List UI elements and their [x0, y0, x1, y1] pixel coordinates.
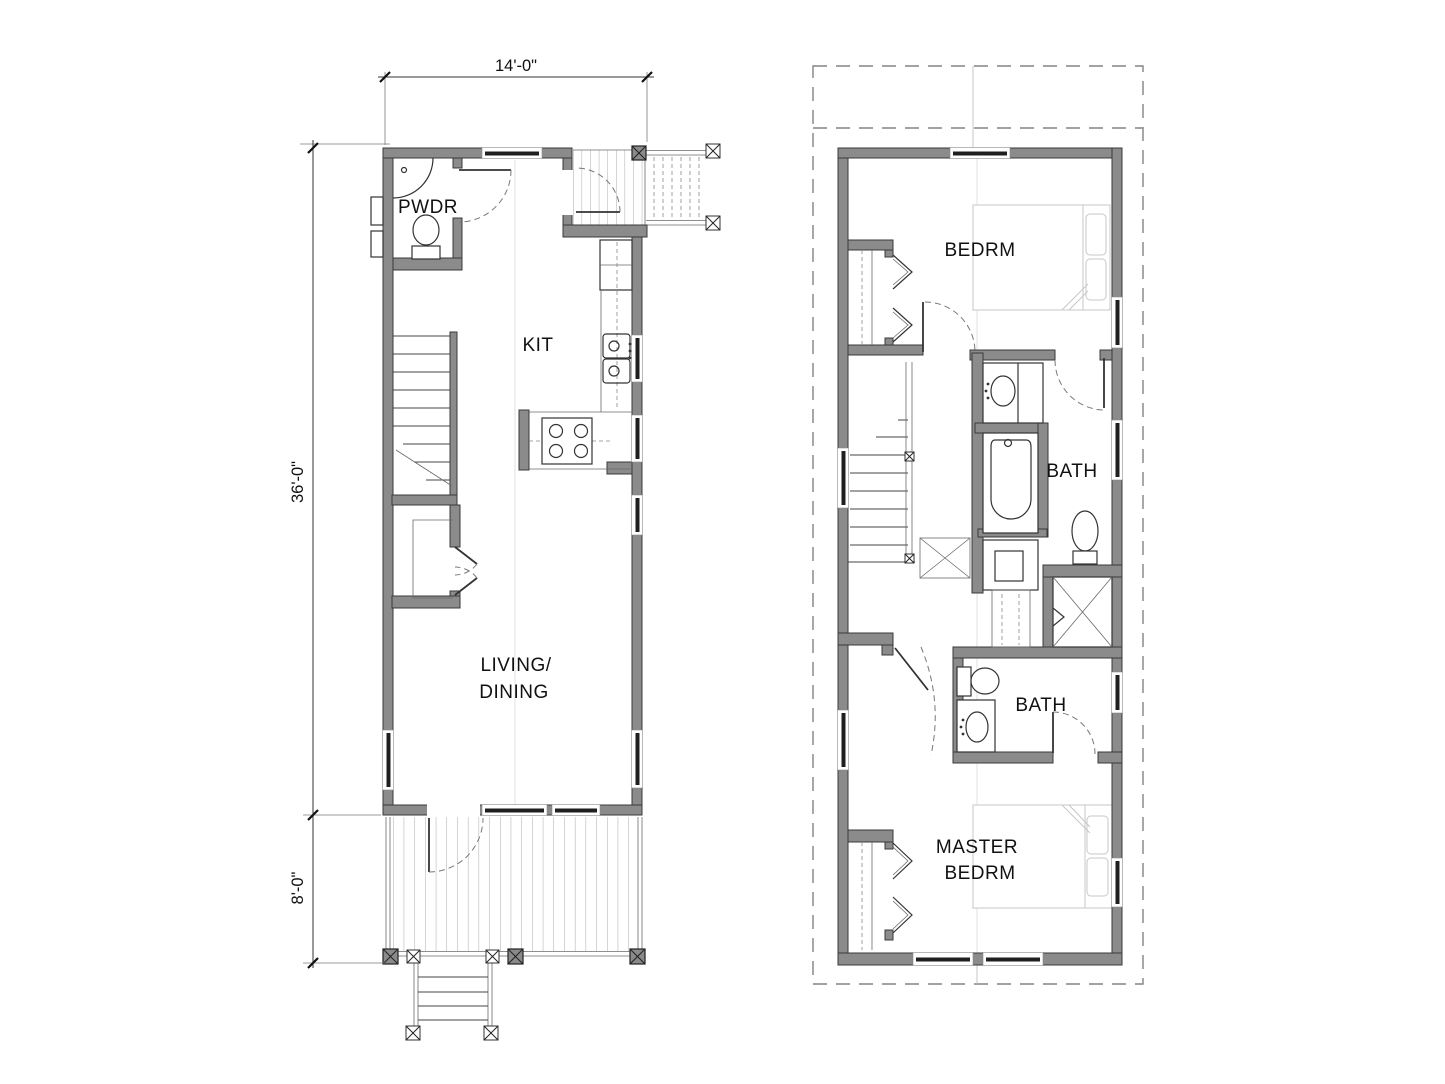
stairs	[848, 362, 915, 563]
entry-landing	[573, 144, 720, 230]
window	[838, 448, 849, 508]
floor-plan-drawing: 14'-0" 36'-0" 8'-0" PWDR KIT LIVING/ DIN…	[0, 0, 1445, 1084]
vanity-sink-fixture	[957, 700, 995, 752]
bedroom-closet	[862, 250, 912, 345]
room-label-kitchen: KIT	[522, 335, 553, 356]
stove-fixture	[542, 418, 592, 464]
closet-double-doors	[455, 547, 477, 595]
window	[1112, 420, 1123, 480]
window	[482, 148, 542, 159]
window	[632, 335, 643, 382]
interior-walls	[392, 218, 632, 608]
porch-door-opening	[427, 805, 480, 816]
attic-access	[920, 538, 970, 578]
master-entry-door	[895, 647, 935, 755]
window	[632, 730, 643, 788]
room-label-master-line2: BEDRM	[944, 863, 1015, 884]
window	[1112, 297, 1123, 348]
room-label-powder: PWDR	[398, 197, 458, 218]
window	[383, 730, 394, 790]
vanity-sink-fixture	[983, 363, 1043, 423]
interior-stairs	[393, 336, 452, 486]
window	[1112, 672, 1123, 713]
second-floor-plan: BEDRM BATH BATH MASTER BEDRM	[813, 66, 1143, 984]
entry-door-opening	[562, 170, 573, 215]
window	[552, 805, 600, 816]
bathtub-fixture	[983, 433, 1038, 533]
window	[482, 805, 547, 816]
closet-interior	[413, 520, 453, 598]
window	[913, 953, 973, 966]
utility-box	[371, 197, 383, 225]
window	[950, 148, 1010, 159]
corner-sink-fixture	[393, 158, 433, 198]
first-floor-plan: 14'-0" 36'-0" 8'-0" PWDR KIT LIVING/ DIN…	[289, 57, 720, 1040]
window	[838, 710, 849, 770]
window	[1112, 858, 1123, 907]
window	[632, 415, 643, 462]
refrigerator-fixture	[600, 240, 632, 290]
washer-dryer-fixture	[983, 540, 1038, 590]
powder-door	[459, 170, 511, 222]
shower-fixture	[1053, 577, 1112, 647]
dim-width-label: 14'-0"	[495, 57, 537, 75]
window	[632, 495, 643, 535]
room-label-bath-upper: BATH	[1046, 461, 1097, 482]
room-label-master-line1: MASTER	[936, 837, 1018, 858]
toilet-fixture	[412, 215, 440, 259]
dim-porch-label: 8'-0"	[289, 871, 307, 904]
room-label-living: LIVING/	[480, 655, 551, 676]
floor-plan-canvas: 14'-0" 36'-0" 8'-0" PWDR KIT LIVING/ DIN…	[0, 0, 1445, 1084]
upper-bath-door	[1055, 358, 1104, 410]
toilet-fixture	[957, 667, 999, 696]
room-label-bedroom: BEDRM	[944, 240, 1015, 261]
entry-steps	[654, 157, 699, 219]
room-label-dining: DINING	[479, 682, 549, 703]
linen-cabinet	[992, 590, 1030, 647]
dim-depth-label: 36'-0"	[289, 461, 307, 503]
window	[983, 953, 1043, 966]
bedroom-door	[923, 302, 975, 352]
porch-deck	[386, 817, 642, 956]
lower-bath-door	[1053, 712, 1095, 754]
lower-bath	[957, 667, 999, 752]
toilet-fixture	[1072, 511, 1098, 564]
porch-posts	[383, 949, 645, 1040]
utility-box	[371, 231, 383, 257]
room-label-bath-lower: BATH	[1015, 695, 1066, 716]
porch-steps	[414, 963, 492, 1028]
